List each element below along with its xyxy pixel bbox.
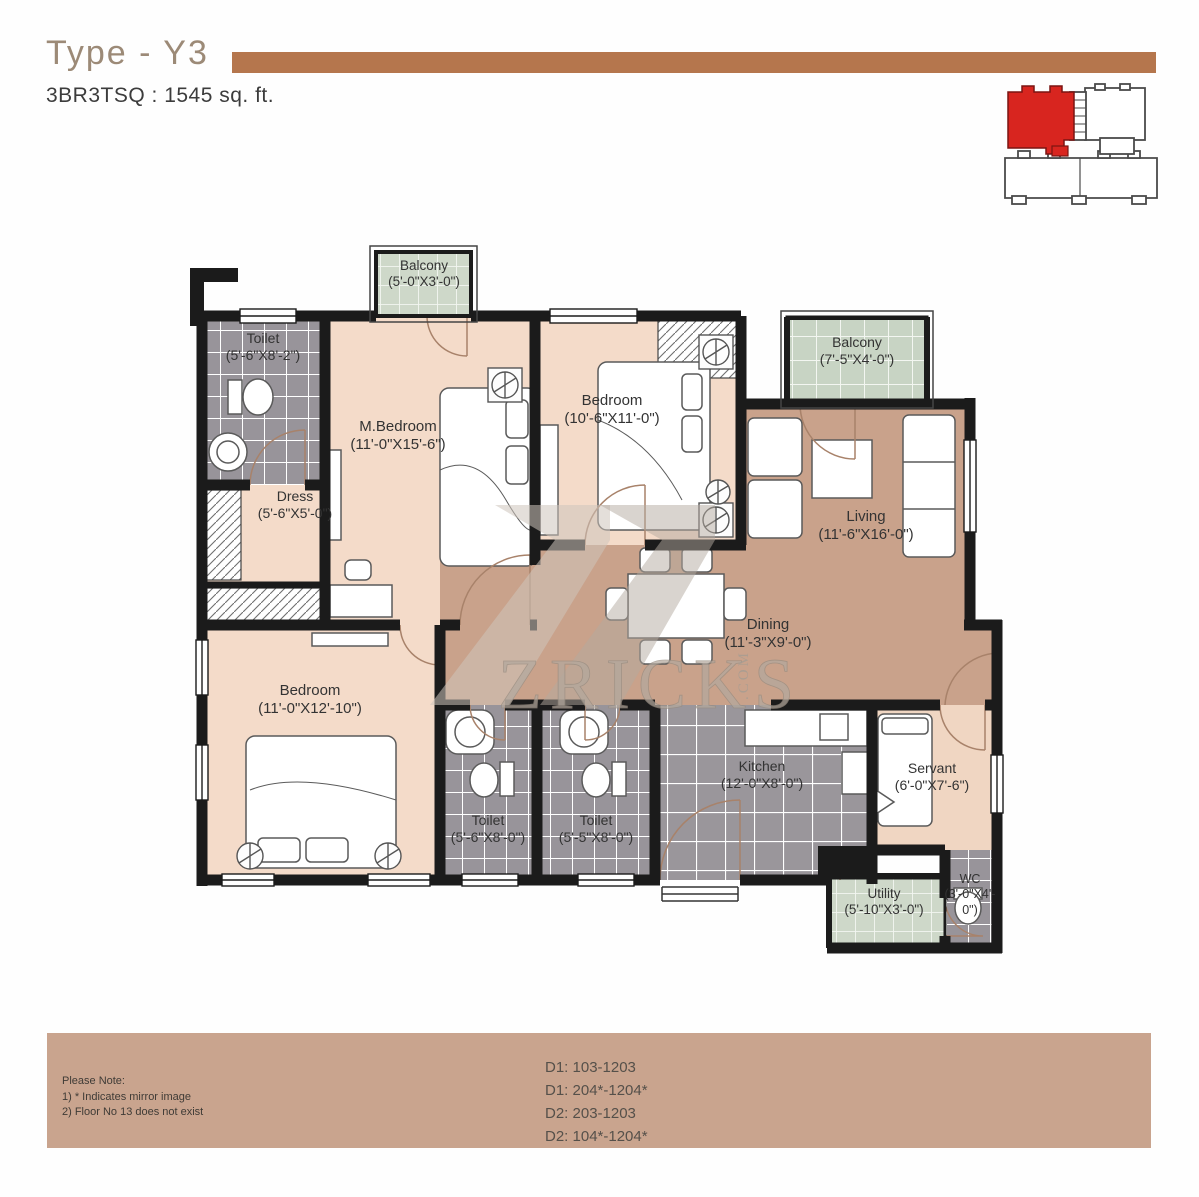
note-item: 2) Floor No 13 does not exist [62,1105,203,1121]
room-label-servant: Servant(6'-0"X7'-6") [895,760,969,794]
room-label-dress: Dress(5'-6"X5'-0") [258,488,332,522]
key-plan [1005,84,1157,204]
watermark-text: ZRICKS [498,644,802,724]
unit-line: D1: 103-1203 [545,1056,648,1079]
watermark-suffix: .COM [736,650,752,700]
notes-heading: Please Note: [62,1074,203,1090]
room-label-toilet-3: Toilet(5'-5"X8'-0") [559,812,633,846]
floor-plan-drawing: ZRICKS .COM [0,0,1199,1197]
floor-plan-page: Type - Y3 3BR3TSQ : 1545 sq. ft. [0,0,1199,1197]
room-label-kitchen: Kitchen(12'-0"X8'-0") [721,758,803,792]
room-label-wc: WC(3'-0"X4'-0") [940,872,1000,918]
room-label-balcony-2: Balcony(7'-5"X4'-0") [820,334,894,368]
key-plan-highlight [1008,86,1074,154]
room-label-toilet-1: Toilet(5'-6"X8'-2") [226,330,300,364]
room-label-bedroom-1: Bedroom(10'-6"X11'-0") [564,392,659,429]
unit-line: D2: 203-1203 [545,1102,648,1125]
notes-block: Please Note: 1) * Indicates mirror image… [62,1074,203,1121]
unit-line: D2: 104*-1204* [545,1125,648,1148]
room-label-utility: Utility(5'-10"X3'-0") [844,886,923,919]
room-label-balcony-1: Balcony(5'-0"X3'-0") [388,258,460,291]
room-label-dining: Dining(11'-3"X9'-0") [725,616,812,653]
room-label-toilet-2: Toilet(5'-6"X8'-0") [451,812,525,846]
note-item: 1) * Indicates mirror image [62,1090,203,1106]
unit-list: D1: 103-1203 D1: 204*-1204* D2: 203-1203… [545,1056,648,1148]
unit-line: D1: 204*-1204* [545,1079,648,1102]
room-label-bedroom-2: Bedroom(11'-0"X12'-10") [258,682,362,719]
room-label-m-bedroom: M.Bedroom(11'-0"X15'-6") [350,418,445,455]
entry-steps [662,887,738,901]
room-label-living: Living(11'-6"X16'-0") [818,508,913,545]
